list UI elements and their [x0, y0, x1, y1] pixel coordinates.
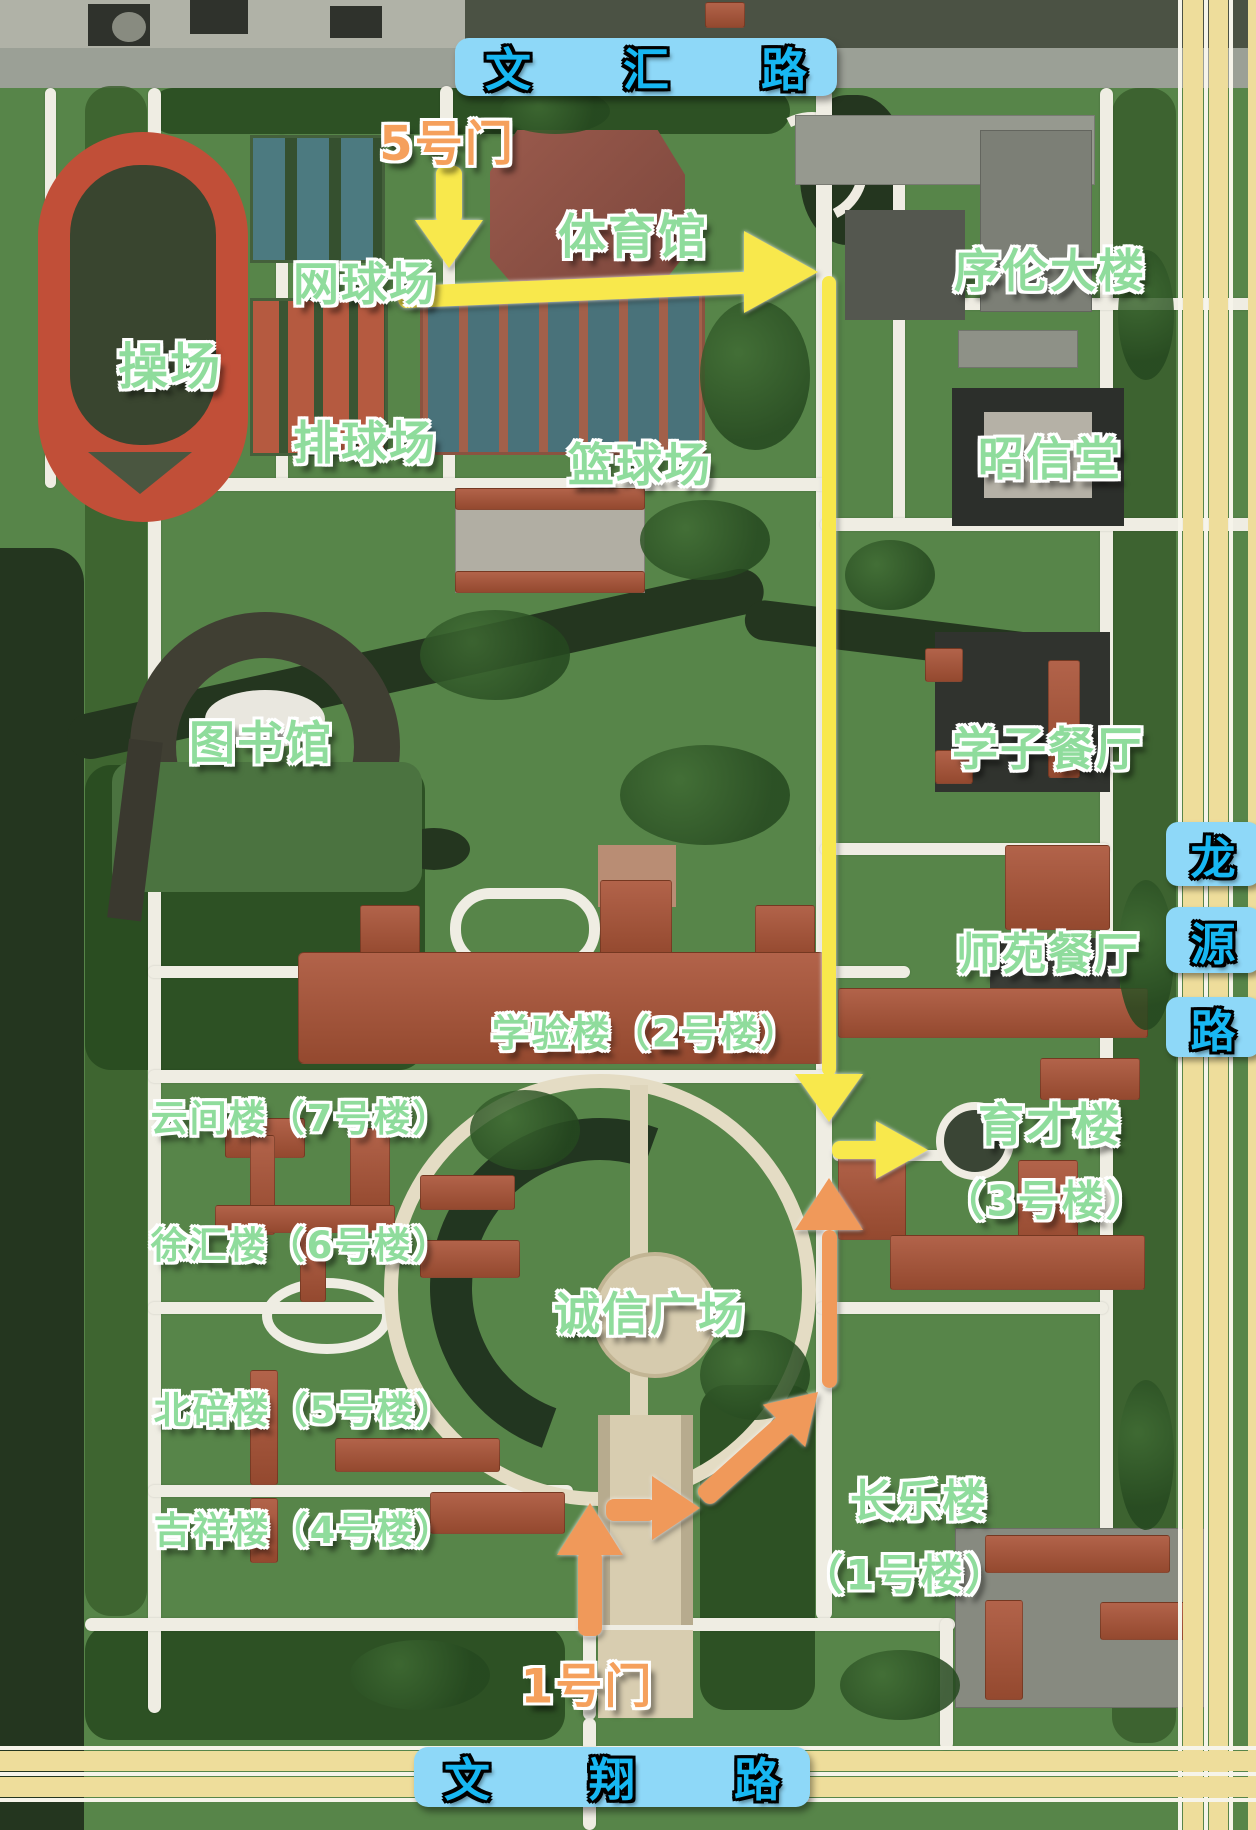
- yucai-bar: [890, 1235, 1145, 1290]
- tree: [470, 1090, 580, 1170]
- road-name-char: 文: [444, 1744, 490, 1810]
- label-library: 图书馆: [189, 707, 333, 773]
- road-name-char: 翔: [589, 1744, 635, 1810]
- label-jixiang-building: 吉祥楼（4号楼）: [154, 1500, 455, 1554]
- label-shiyuan-canteen: 师苑餐厅: [956, 918, 1140, 982]
- library-arc-cut: [112, 762, 422, 892]
- label-volleyball-courts: 排球场: [293, 407, 437, 473]
- orange-arrow-head-right: [652, 1476, 700, 1540]
- road-name-char: 路: [1190, 995, 1235, 1060]
- tree: [640, 500, 770, 580]
- label-gymnasium: 体育馆: [558, 197, 708, 267]
- label-changle-building: 长乐楼: [850, 1465, 988, 1529]
- wenxiang-road-banner: 文 翔 路: [414, 1747, 810, 1807]
- central-building-roof: [455, 571, 645, 593]
- orange-arrow-stem: [606, 1499, 656, 1521]
- tree: [420, 610, 570, 700]
- label-chengxin-square: 诚信广场: [554, 1278, 746, 1344]
- tree: [700, 300, 810, 450]
- label-xueyan-building: 学验楼（2号楼）: [492, 1003, 800, 1058]
- road: [148, 1070, 830, 1083]
- longyuan-road-chip: 龙: [1166, 822, 1256, 886]
- xueyan-wing: [360, 905, 420, 957]
- track-triangle: [88, 452, 192, 494]
- label-yunjian-building: 云间楼（7号楼）: [151, 1088, 452, 1142]
- road-name-char: 路: [761, 34, 807, 100]
- label-yucai-building-number: （3号楼）: [942, 1168, 1149, 1229]
- dorm-building: [420, 1175, 515, 1210]
- label-playground: 操场: [118, 327, 222, 399]
- road: [85, 1618, 955, 1631]
- changle-bar: [985, 1600, 1023, 1700]
- track-infield: [70, 165, 216, 445]
- label-gate1: 1号门: [521, 1648, 654, 1717]
- campus-satellite-map: 文 汇 路 文 翔 路 龙 源 路 操场 网球场 排球场 篮球场 体育馆 序伦大…: [0, 0, 1256, 1830]
- xulun-building: [845, 210, 965, 320]
- building: [958, 330, 1078, 368]
- label-beibei-building: 北碚楼（5号楼）: [154, 1380, 455, 1434]
- label-changle-building-number: （1号楼）: [801, 1542, 1008, 1603]
- road-name-char: 文: [485, 34, 531, 100]
- tennis-courts: [250, 135, 385, 263]
- label-yucai-building: 育才楼: [978, 1089, 1122, 1155]
- longyuan-road-chip: 路: [1166, 997, 1256, 1057]
- building: [705, 2, 745, 28]
- label-xulun-building: 序伦大楼: [954, 235, 1146, 301]
- xueyan-wing: [600, 880, 672, 956]
- yellow-arrow-head-down: [795, 1074, 863, 1122]
- yucai-bar: [838, 988, 1148, 1038]
- orange-arrow-stem: [822, 1230, 837, 1388]
- building: [190, 0, 248, 34]
- tree: [845, 540, 935, 610]
- urban-block-top-left: [0, 0, 465, 50]
- yellow-arrow-head-right: [744, 231, 818, 313]
- yellow-arrow-stem: [436, 166, 462, 224]
- label-xuezi-canteen: 学子餐厅: [952, 713, 1144, 779]
- road-name-char: 路: [734, 1744, 780, 1810]
- orange-arrow-stem: [578, 1550, 602, 1636]
- building: [330, 6, 382, 38]
- tree: [1118, 1380, 1174, 1530]
- label-zhaoxin-hall: 昭信堂: [978, 423, 1122, 489]
- round-tank: [112, 12, 146, 42]
- yellow-arrow-head-right: [876, 1121, 928, 1179]
- tree: [350, 1640, 490, 1710]
- xueyan-wing: [755, 905, 815, 957]
- wenhui-road-banner: 文 汇 路: [455, 38, 837, 96]
- tree: [840, 1650, 960, 1720]
- label-gate5: 5号门: [379, 104, 514, 174]
- road-name-char: 汇: [623, 34, 669, 100]
- yellow-arrow-stem: [832, 1141, 882, 1159]
- changle-bar: [985, 1535, 1170, 1573]
- label-tennis-courts: 网球场: [293, 248, 437, 314]
- label-basketball-courts: 篮球场: [568, 429, 712, 495]
- tree: [620, 745, 790, 845]
- label-xuhui-building: 徐汇楼（6号楼）: [151, 1215, 452, 1269]
- road: [816, 1302, 1108, 1314]
- road-name-char: 源: [1190, 908, 1235, 973]
- road-name-char: 龙: [1190, 822, 1235, 887]
- road: [893, 140, 905, 525]
- dorm-building: [335, 1438, 500, 1472]
- road-oval: [262, 1278, 392, 1354]
- canteen-corner: [925, 648, 963, 682]
- yellow-arrow-stem: [822, 276, 836, 1076]
- longyuan-road-chip: 源: [1166, 907, 1256, 973]
- orange-arrow-head-up: [795, 1178, 863, 1230]
